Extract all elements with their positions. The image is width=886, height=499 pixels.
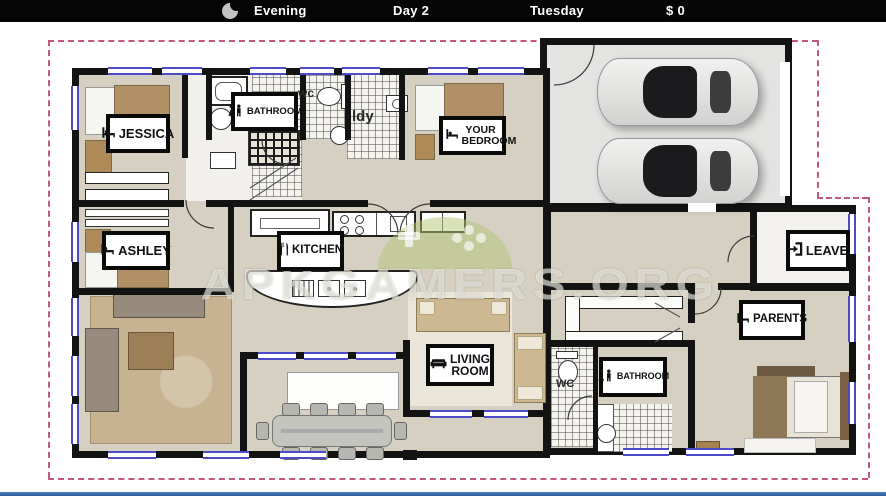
window <box>250 67 286 75</box>
toilet-bottom-tank <box>556 351 578 359</box>
window <box>162 67 202 75</box>
laundry-text: ldy <box>352 108 374 125</box>
window <box>484 410 528 418</box>
sofa-icon <box>430 358 447 371</box>
cutlery-icon <box>278 242 289 260</box>
parents-bed-pillows <box>794 381 828 433</box>
window <box>428 67 468 75</box>
day-counter: Day 2 <box>393 3 429 18</box>
window <box>342 67 380 75</box>
living-chaise <box>514 333 546 403</box>
label-jessica[interactable]: JESSICA <box>106 114 170 153</box>
bed-icon <box>446 129 459 142</box>
window <box>848 382 856 424</box>
window <box>203 451 249 459</box>
floor-plan-screen: wc ldy WC APKGAMERS.ORG JESSICA BATHROOM… <box>0 0 886 499</box>
bathroom-fixture <box>210 152 236 169</box>
window <box>848 296 856 342</box>
wall <box>430 200 550 207</box>
window <box>280 451 326 459</box>
boundary-right-lower <box>868 197 870 478</box>
window <box>300 67 334 75</box>
exit-door-icon <box>788 242 803 258</box>
wall <box>593 347 598 455</box>
your-nightstand <box>415 134 435 160</box>
time-of-day: Evening <box>254 3 307 18</box>
boundary-bottom <box>48 478 868 480</box>
wall <box>300 68 306 140</box>
bottom-divider-line <box>0 492 886 496</box>
bed-icon <box>102 127 116 140</box>
label-leave[interactable]: LEAVE <box>786 230 850 271</box>
watermark-text: APKGAMERS.ORG <box>79 260 841 310</box>
boundary-jog <box>817 197 868 199</box>
bed-icon <box>101 244 115 257</box>
label-bathroom-bottom[interactable]: BATHROOM <box>599 357 667 397</box>
wall <box>688 340 695 455</box>
window <box>623 448 669 456</box>
label-bathroom-top[interactable]: BATHROOM <box>231 92 298 131</box>
dining-chair <box>366 403 384 416</box>
lounge-sofa <box>85 328 119 412</box>
jessica-wardrobe-shelf <box>85 172 169 184</box>
window <box>304 352 348 360</box>
coffee-table <box>128 332 174 370</box>
gamepad-dot <box>452 233 462 243</box>
hud-topbar: Evening Day 2 Tuesday $ 0 <box>0 0 886 22</box>
gamepad-dot <box>464 241 474 251</box>
garage-side-door <box>688 203 716 212</box>
wall <box>182 68 188 158</box>
label-ashley[interactable]: ASHLEY <box>102 231 170 270</box>
wall <box>399 68 405 160</box>
car-top <box>597 58 759 126</box>
dining-chair <box>282 403 300 416</box>
dining-chair <box>310 403 328 416</box>
parents-bench <box>757 366 815 376</box>
dining-chair <box>256 422 269 440</box>
hallway-floor <box>186 75 208 201</box>
boundary-left <box>48 40 50 478</box>
window <box>71 404 79 444</box>
restroom-people-icon <box>227 104 244 120</box>
parents-rug <box>744 438 816 453</box>
wall <box>72 200 184 207</box>
wall <box>206 200 368 207</box>
parents-bed-blanket <box>753 376 787 438</box>
window <box>686 448 734 456</box>
restroom-people-icon <box>597 369 614 384</box>
stairs <box>248 130 300 166</box>
wall <box>403 340 410 417</box>
wall <box>551 340 693 347</box>
wall-pillar <box>403 450 417 460</box>
window <box>71 356 79 396</box>
boundary-right-upper <box>817 40 819 198</box>
garage-door-opening <box>780 62 790 196</box>
window <box>258 352 296 360</box>
window <box>71 298 79 336</box>
gamepad-dot <box>476 233 486 243</box>
wall <box>345 68 351 140</box>
window <box>71 222 79 262</box>
money-counter: $ 0 <box>666 3 685 18</box>
wc-top-text: wc <box>298 86 314 100</box>
window <box>108 451 156 459</box>
dining-chair <box>366 447 384 460</box>
window <box>430 410 472 418</box>
label-kitchen[interactable]: KITCHEN <box>277 231 344 271</box>
wall <box>240 352 247 455</box>
toilet-top-bowl <box>317 87 341 106</box>
window <box>478 67 524 75</box>
car-bottom <box>597 138 759 204</box>
ashley-wardrobe-shelf <box>85 219 169 227</box>
bathroom-bottom-sink <box>597 424 616 443</box>
bathroom-bottom-tiles <box>612 404 672 452</box>
window <box>356 352 396 360</box>
dining-chair <box>394 422 407 440</box>
dining-chair <box>338 447 356 460</box>
ashley-wardrobe-shelf <box>85 209 169 217</box>
window <box>108 67 152 75</box>
gamepad-dot <box>464 225 474 235</box>
wc-bottom-text: WC <box>556 378 574 390</box>
dining-chair <box>338 403 356 416</box>
bed-icon <box>737 313 750 327</box>
window <box>71 86 79 130</box>
weekday: Tuesday <box>530 3 584 18</box>
label-parents[interactable]: PARENTS <box>739 300 805 340</box>
crescent-moon-icon <box>222 3 238 19</box>
wall <box>206 68 212 140</box>
label-your-bedroom[interactable]: YOUR BEDROOM <box>439 116 506 155</box>
label-living-room[interactable]: LIVING ROOM <box>426 344 494 386</box>
dining-table <box>272 415 392 447</box>
